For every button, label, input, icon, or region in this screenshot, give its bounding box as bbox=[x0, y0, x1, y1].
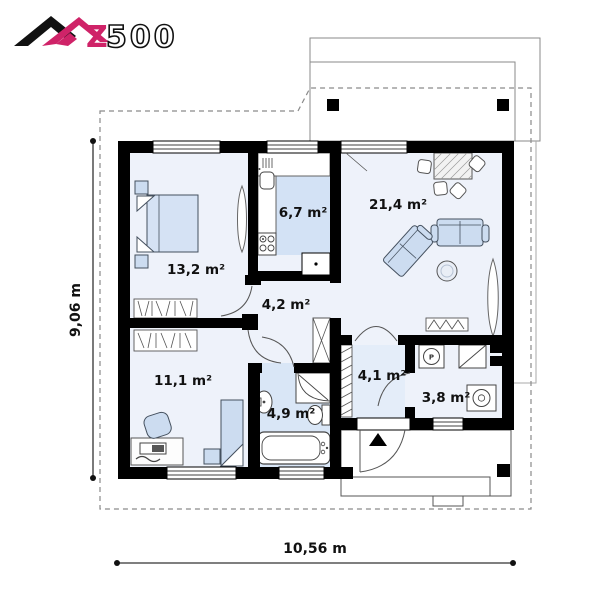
wardrobe bbox=[221, 400, 243, 466]
room-label-kitchen: 6,7 m² bbox=[279, 205, 328, 221]
room-label-utility: 3,8 m² bbox=[422, 390, 471, 406]
chair-icon bbox=[433, 181, 447, 195]
nightstand bbox=[135, 255, 148, 268]
dimension-width-label: 10,56 m bbox=[283, 541, 347, 557]
floor-plan-page: P bbox=[0, 0, 614, 614]
shower-icon bbox=[296, 373, 330, 403]
dimension-horizontal: 10,56 m bbox=[114, 541, 516, 566]
floor-plan-drawing: P bbox=[0, 0, 614, 614]
logo-letter: Z bbox=[86, 20, 108, 55]
porch-step bbox=[433, 496, 463, 506]
sofa bbox=[431, 219, 489, 246]
bathtub-icon bbox=[258, 432, 330, 464]
radiator-icon bbox=[341, 345, 352, 417]
coffee-table bbox=[437, 261, 457, 281]
chair-icon bbox=[417, 159, 432, 174]
room-label-office: 11,1 m² bbox=[154, 373, 212, 389]
room-label-bathroom: 4,9 m² bbox=[267, 406, 316, 422]
terrace bbox=[310, 38, 540, 141]
boiler-icon: P bbox=[419, 345, 444, 368]
radiator-icon bbox=[238, 186, 247, 252]
z500-logo: Z 500 bbox=[14, 16, 178, 55]
window bbox=[267, 141, 318, 153]
closet-symbol bbox=[134, 299, 197, 318]
logo-numbers: 500 bbox=[106, 20, 178, 55]
window bbox=[279, 467, 324, 479]
desk bbox=[131, 438, 183, 465]
porch-column bbox=[497, 464, 510, 477]
window bbox=[153, 141, 220, 153]
entrance-porch bbox=[341, 430, 511, 506]
utility-cabinet-icon bbox=[459, 345, 486, 368]
cabinet bbox=[204, 449, 220, 464]
window bbox=[167, 467, 236, 479]
terrace-column bbox=[327, 99, 339, 111]
boiler-letter: P bbox=[429, 354, 434, 362]
room-label-vestibule: 4,1 m² bbox=[358, 368, 407, 384]
dining-table bbox=[434, 153, 472, 179]
kitchen-pass-through bbox=[302, 253, 330, 275]
tall-cabinet-icon bbox=[313, 318, 330, 363]
washing-machine-icon bbox=[467, 385, 496, 411]
room-label-bedroom: 13,2 m² bbox=[167, 262, 225, 278]
roof-eave-line bbox=[514, 141, 536, 383]
stove-icon bbox=[258, 233, 276, 255]
room-label-hall: 4,2 m² bbox=[262, 297, 311, 313]
terrace-column bbox=[497, 99, 509, 111]
room-label-living: 21,4 m² bbox=[369, 197, 427, 213]
radiator-icon bbox=[426, 318, 468, 331]
window bbox=[433, 418, 463, 430]
dimension-height-label: 9,06 m bbox=[68, 283, 84, 337]
nightstand bbox=[135, 181, 148, 194]
dimension-vertical: 9,06 m bbox=[68, 138, 96, 481]
closet-symbol bbox=[134, 330, 197, 351]
